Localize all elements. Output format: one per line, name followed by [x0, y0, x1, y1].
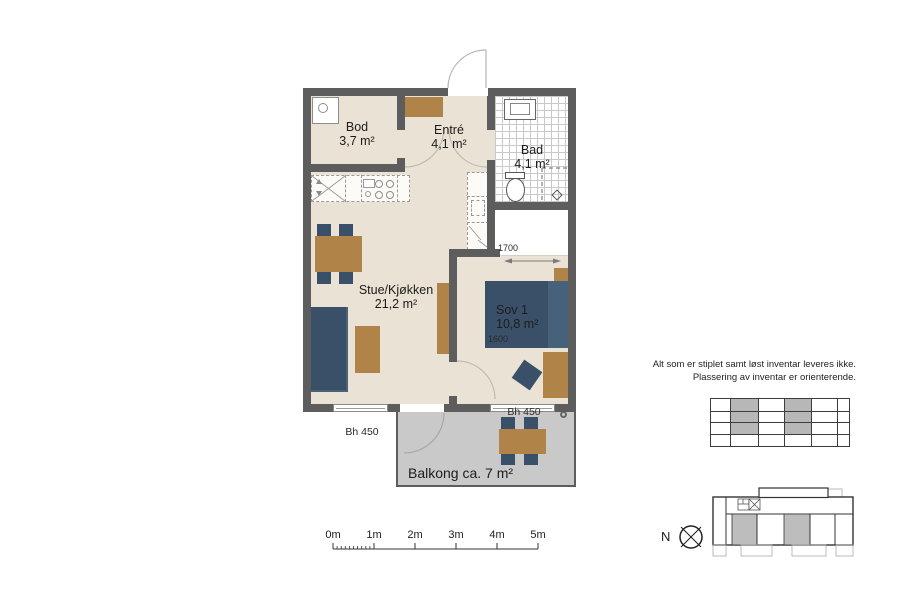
- tall-cabinet-inner: [471, 200, 485, 216]
- table-line: [711, 422, 849, 423]
- room-name: Bod: [339, 120, 374, 134]
- window-pane-line: [336, 408, 385, 409]
- wall-bad-left-upper: [487, 96, 495, 130]
- wall-bottom-c: [444, 404, 490, 412]
- room-label-stue: Stue/Kjøkken 21,2 m²: [359, 283, 433, 311]
- balcony-column: [560, 411, 567, 418]
- dining-chair: [339, 270, 353, 284]
- wall-bod-bottom: [311, 164, 405, 172]
- wall-bottom-d: [555, 404, 576, 412]
- disclaimer-line-1: Alt som er stiplet samt løst inventar le…: [653, 358, 856, 371]
- dimension-label-1700: 1700: [498, 243, 518, 253]
- scale-label-0m: 0m: [325, 529, 340, 541]
- wall-bottom-a: [303, 404, 333, 412]
- elevator-icon: [749, 499, 760, 510]
- window-living-room: [333, 404, 388, 412]
- floor-plan-sheet: Bod 3,7 m² Entré 4,1 m² Bad 4,1 m² Stue/…: [0, 0, 900, 600]
- table-line: [711, 411, 849, 412]
- nightstand: [554, 268, 568, 281]
- wall-bottom-b: [388, 404, 400, 412]
- door-threshold: [487, 130, 495, 160]
- dimension-label-1600: 1600: [488, 334, 508, 344]
- wall-left: [303, 88, 311, 412]
- door-threshold: [449, 362, 457, 396]
- wall-bod-divider-upper: [397, 96, 405, 130]
- wall-sov1-left: [449, 249, 457, 362]
- stove-burner-icon: [375, 180, 383, 188]
- wall-top-right: [488, 88, 576, 96]
- floor-indicator-table: [710, 398, 850, 447]
- door-threshold: [397, 130, 405, 158]
- room-area: 10,8 m²: [496, 317, 538, 331]
- entre-cabinet: [405, 97, 443, 117]
- window-height-label-balcony: Bh 450: [507, 406, 540, 418]
- room-name: Entré: [431, 123, 466, 137]
- toilet-bowl-icon: [506, 178, 525, 202]
- scale-label-4m: 4m: [489, 529, 504, 541]
- scale-label-2m: 2m: [407, 529, 422, 541]
- key-plan-unit-highlight: [732, 514, 757, 545]
- room-label-bad: Bad 4,1 m²: [514, 143, 549, 171]
- room-area: 4,1 m²: [514, 157, 549, 171]
- bathroom-sink-basin-icon: [510, 103, 530, 115]
- sofa: [310, 307, 348, 392]
- dining-chair: [317, 270, 331, 284]
- room-label-sov1: Sov 1 10,8 m²: [496, 303, 538, 331]
- key-plan: [713, 488, 853, 556]
- kitchen-sink-drain-icon: [365, 191, 371, 197]
- scale-bar: [333, 543, 538, 549]
- dining-table: [315, 236, 362, 272]
- wall-right: [568, 88, 576, 412]
- floor-indicator-highlight: [784, 399, 811, 434]
- disclaimer-line-2: Plassering av inventar er orienterende.: [653, 371, 856, 384]
- room-area: 4,1 m²: [431, 137, 466, 151]
- scale-label-5m: 5m: [530, 529, 545, 541]
- tall-cabinet-divider: [467, 222, 489, 223]
- room-name: Sov 1: [496, 303, 538, 317]
- floor-indicator-highlight: [730, 399, 758, 434]
- room-name: Stue/Kjøkken: [359, 283, 433, 297]
- compass-icon: [680, 526, 702, 548]
- room-label-balcony: Balkong ca. 7 m²: [408, 465, 513, 481]
- desk: [543, 352, 568, 398]
- window-height-label-left: Bh 450: [345, 426, 378, 438]
- room-area: 3,7 m²: [339, 134, 374, 148]
- scale-label-1m: 1m: [366, 529, 381, 541]
- wall-sov1-left-stub: [449, 396, 457, 404]
- door-arc-entrance: [448, 50, 486, 88]
- room-area: 21,2 m²: [359, 297, 433, 311]
- scale-label-3m: 3m: [448, 529, 463, 541]
- coffee-table: [355, 326, 380, 373]
- stove-burner-icon: [375, 191, 383, 199]
- counter-divider: [397, 175, 398, 202]
- wall-bad-bottom: [487, 202, 576, 210]
- counter-divider: [361, 175, 362, 202]
- room-name: Bad: [514, 143, 549, 157]
- room-label-bod: Bod 3,7 m²: [339, 120, 374, 148]
- stair-icon: [738, 499, 749, 510]
- disclaimer-text: Alt som er stiplet samt løst inventar le…: [653, 358, 856, 384]
- wall-top-left: [303, 88, 448, 96]
- kitchen-sink-icon: [363, 179, 375, 188]
- bed-pillow-area: [548, 281, 568, 348]
- north-label: N: [661, 529, 670, 544]
- stove-burner-icon: [386, 191, 394, 199]
- tall-cabinet-divider: [467, 196, 489, 197]
- counter-divider: [345, 175, 346, 202]
- balcony-table: [499, 429, 546, 454]
- room-label-entre: Entré 4,1 m²: [431, 123, 466, 151]
- key-plan-unit-highlight: [784, 514, 810, 545]
- table-line: [711, 434, 849, 435]
- washing-machine-drum-icon: [318, 103, 328, 113]
- stove-burner-icon: [386, 180, 394, 188]
